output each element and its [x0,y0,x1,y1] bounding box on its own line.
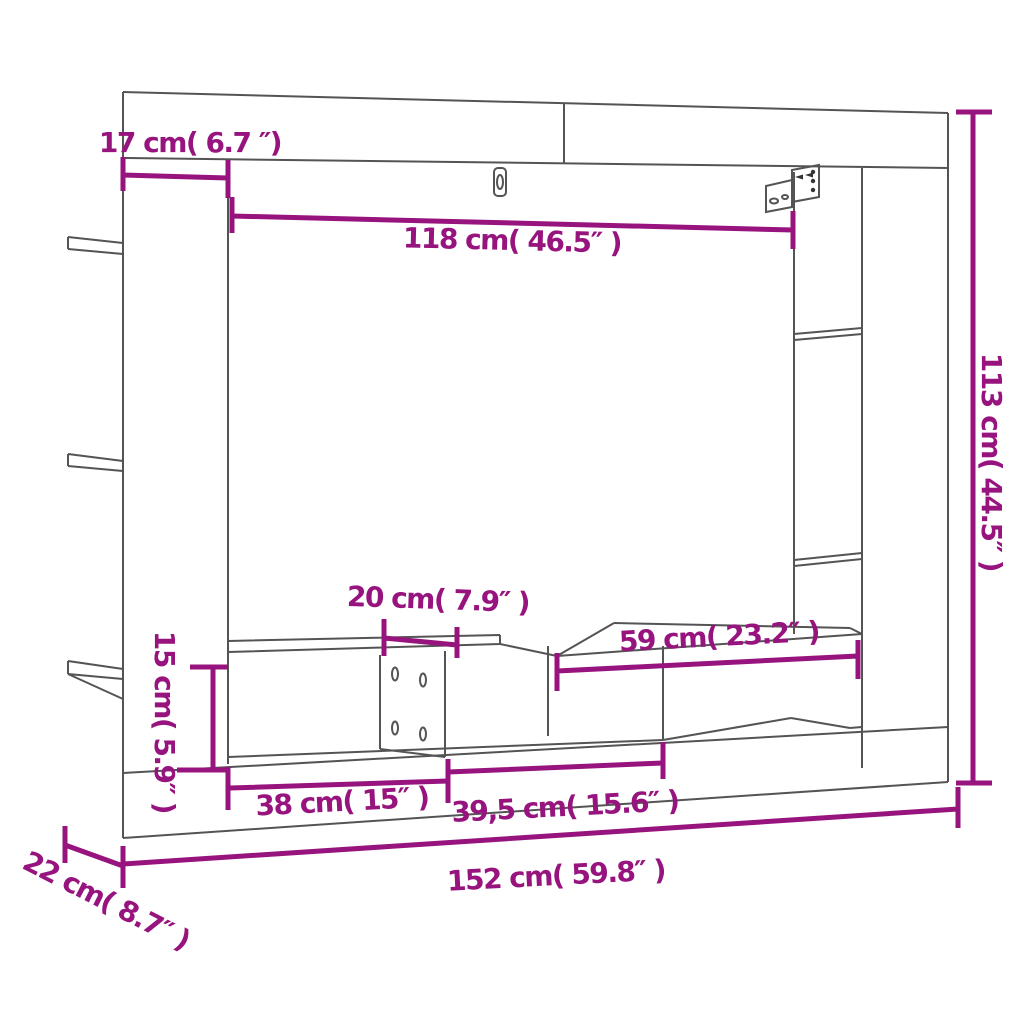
wall-bracket-icon [766,165,819,212]
cabinet-outline [123,92,948,838]
keyhole-mount-icon [494,168,506,196]
furniture-dimension-diagram: 17 cm( 6.7 ″) 118 cm( 46.5″ ) 113 cm( 44… [0,0,1024,1024]
shelf-pin-holes [392,668,426,741]
dim-line-22cm [65,826,123,866]
dim-line-17cm [123,157,228,198]
dimension-label-total-height: 113 cm( 44.5″ ) [977,353,1005,571]
dimension-label-top-depth: 17 cm( 6.7 ″) [99,129,281,157]
dim-line-15cm [177,667,228,771]
dimension-label-inner-width: 118 cm( 46.5″ ) [403,224,622,257]
dimension-label-bench-height: 15 cm( 5.9″ ) [150,631,178,813]
dimension-label-top-shelf-width: 20 cm( 7.9″ ) [346,583,529,617]
dim-line-20cm [384,619,457,658]
left-wall-shelves [68,237,123,699]
